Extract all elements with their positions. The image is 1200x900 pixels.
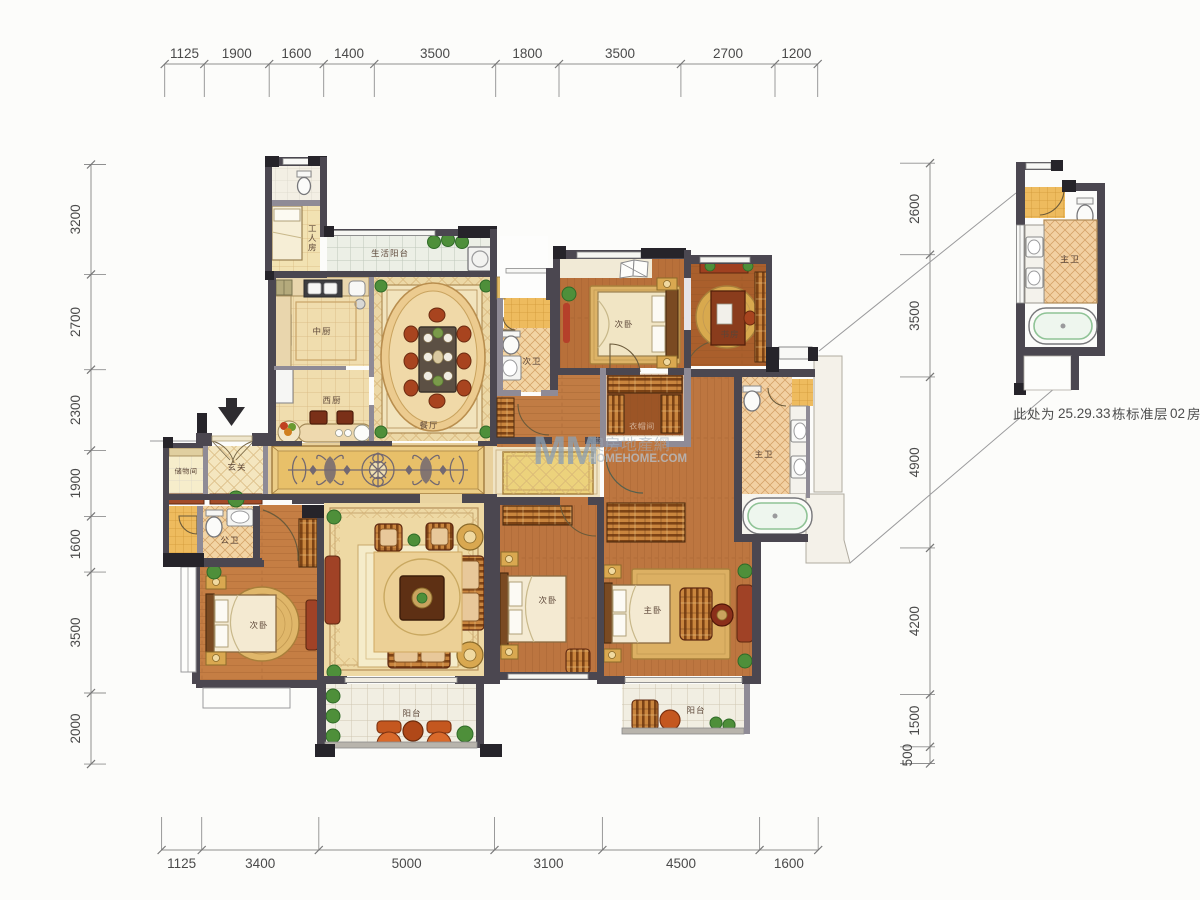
svg-text:1125: 1125: [170, 46, 199, 61]
svg-text:2000: 2000: [68, 713, 83, 743]
svg-text:1500: 1500: [907, 706, 922, 736]
svg-text:3400: 3400: [245, 856, 275, 871]
svg-text:3500: 3500: [68, 617, 83, 647]
svg-text:1600: 1600: [68, 529, 83, 559]
svg-text:1125: 1125: [167, 856, 196, 871]
svg-text:1400: 1400: [334, 46, 364, 61]
svg-text:1900: 1900: [222, 46, 252, 61]
svg-text:02: 02: [1170, 406, 1185, 421]
svg-text:2300: 2300: [68, 395, 83, 425]
svg-text:25.29.33: 25.29.33: [1058, 406, 1111, 421]
svg-text:4200: 4200: [907, 606, 922, 636]
svg-text:4900: 4900: [907, 447, 922, 477]
svg-text:1200: 1200: [781, 46, 811, 61]
svg-text:4500: 4500: [666, 856, 696, 871]
svg-text:3500: 3500: [605, 46, 635, 61]
svg-text:3100: 3100: [533, 856, 563, 871]
svg-text:HOMEHOME.COM: HOMEHOME.COM: [588, 453, 687, 465]
svg-text:2700: 2700: [713, 46, 743, 61]
svg-text:3200: 3200: [68, 204, 83, 234]
svg-text:2600: 2600: [907, 194, 922, 224]
svg-text:3500: 3500: [907, 301, 922, 331]
svg-text:MM: MM: [533, 429, 598, 473]
svg-text:5000: 5000: [392, 856, 422, 871]
svg-text:3500: 3500: [420, 46, 450, 61]
svg-text:500: 500: [900, 744, 915, 767]
svg-text:1600: 1600: [281, 46, 311, 61]
svg-text:1800: 1800: [512, 46, 542, 61]
svg-text:1900: 1900: [68, 468, 83, 498]
svg-text:2700: 2700: [68, 307, 83, 337]
svg-text:1600: 1600: [774, 856, 804, 871]
